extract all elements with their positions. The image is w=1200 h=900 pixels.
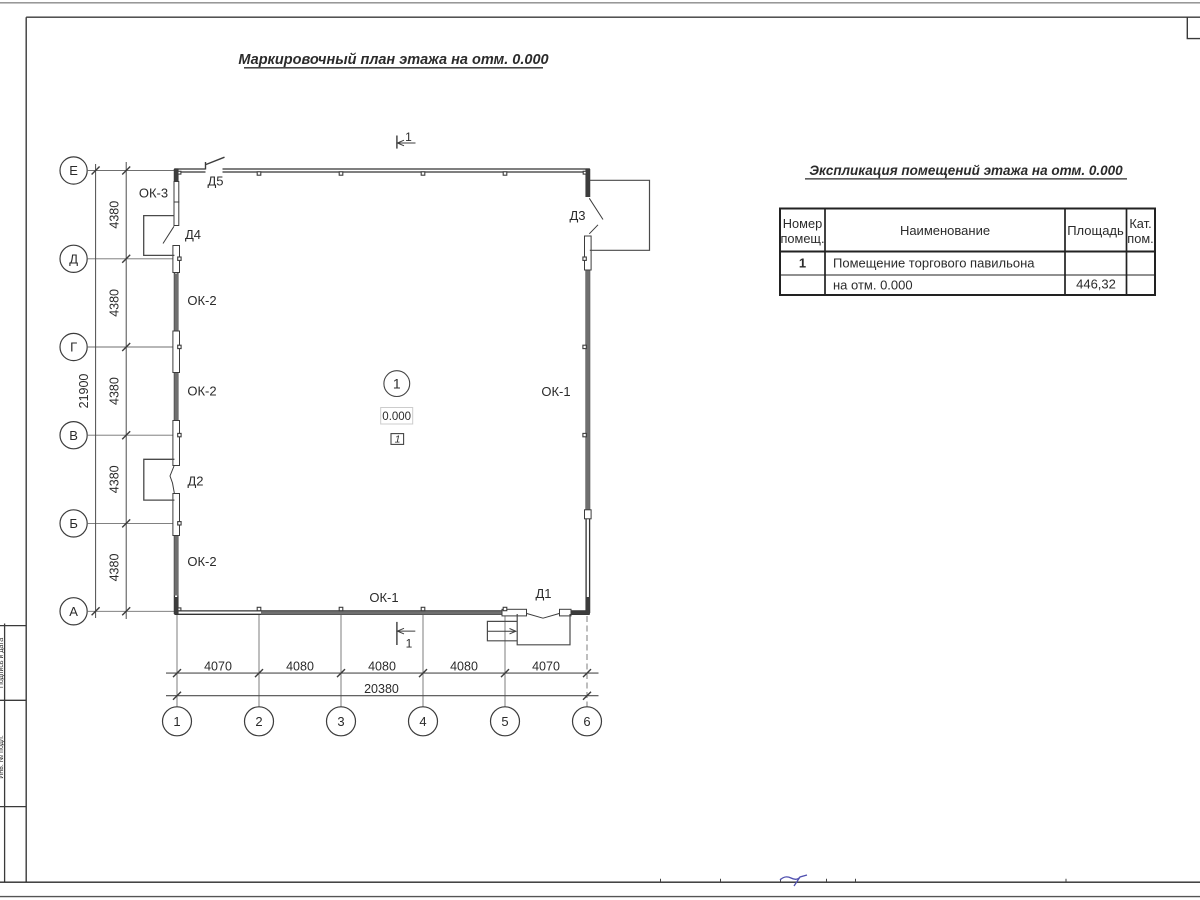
svg-text:В: В — [69, 428, 78, 443]
svg-text:4070: 4070 — [532, 660, 560, 674]
svg-text:1: 1 — [799, 256, 806, 271]
svg-text:Д: Д — [69, 252, 78, 267]
svg-text:4380: 4380 — [108, 201, 122, 229]
svg-text:4070: 4070 — [204, 660, 232, 674]
svg-text:ОК-2: ОК-2 — [187, 554, 216, 569]
svg-text:на отм. 0.000: на отм. 0.000 — [833, 278, 913, 293]
svg-text:помещ.: помещ. — [780, 231, 824, 246]
svg-text:1: 1 — [405, 130, 412, 144]
svg-text:Д4: Д4 — [185, 227, 201, 242]
svg-text:4080: 4080 — [286, 660, 314, 674]
svg-text:Д2: Д2 — [187, 474, 203, 489]
svg-text:ОК-2: ОК-2 — [187, 293, 216, 308]
svg-text:0.000: 0.000 — [382, 411, 411, 423]
svg-text:Наименование: Наименование — [900, 223, 990, 238]
svg-text:Кат.: Кат. — [1129, 216, 1151, 231]
svg-text:4380: 4380 — [108, 465, 122, 493]
svg-text:Площадь: Площадь — [1067, 223, 1124, 238]
svg-text:Д1: Д1 — [535, 586, 551, 601]
svg-text:Подпись и дата: Подпись и дата — [0, 638, 5, 688]
svg-text:пом.: пом. — [1127, 231, 1153, 246]
svg-text:ОК-2: ОК-2 — [187, 384, 216, 399]
svg-text:Д5: Д5 — [207, 174, 223, 189]
svg-text:Помещение торгового павильона: Помещение торгового павильона — [833, 256, 1035, 271]
svg-text:Маркировочный план этажа на от: Маркировочный план этажа на отм. 0.000 — [238, 52, 548, 68]
svg-text:Инв. № подл.: Инв. № подл. — [0, 735, 5, 779]
svg-text:1: 1 — [395, 434, 401, 446]
svg-text:6: 6 — [583, 714, 590, 729]
svg-text:ОК-1: ОК-1 — [541, 384, 570, 399]
svg-text:Д3: Д3 — [569, 208, 585, 223]
svg-text:4: 4 — [419, 714, 426, 729]
svg-text:2: 2 — [255, 714, 262, 729]
svg-text:4380: 4380 — [108, 377, 122, 405]
svg-text:4080: 4080 — [368, 660, 396, 674]
svg-text:4080: 4080 — [450, 660, 478, 674]
svg-text:5: 5 — [501, 714, 508, 729]
svg-text:Экспликация помещений этажа на: Экспликация помещений этажа на отм. 0.00… — [809, 163, 1123, 178]
svg-text:446,32: 446,32 — [1076, 277, 1116, 292]
svg-text:ОК-3: ОК-3 — [139, 186, 168, 201]
svg-text:3: 3 — [337, 714, 344, 729]
svg-text:20380: 20380 — [364, 682, 399, 696]
svg-text:4380: 4380 — [108, 554, 122, 582]
svg-text:1: 1 — [173, 714, 180, 729]
svg-text:ОК-1: ОК-1 — [369, 590, 398, 605]
svg-text:Б: Б — [69, 516, 78, 531]
svg-text:1: 1 — [406, 637, 413, 651]
svg-text:21900: 21900 — [77, 374, 91, 409]
svg-text:Г: Г — [70, 340, 77, 355]
svg-text:Е: Е — [69, 163, 78, 178]
svg-text:А: А — [69, 604, 78, 619]
svg-text:4380: 4380 — [108, 289, 122, 317]
svg-text:Номер: Номер — [783, 216, 822, 231]
svg-text:1: 1 — [393, 376, 401, 392]
